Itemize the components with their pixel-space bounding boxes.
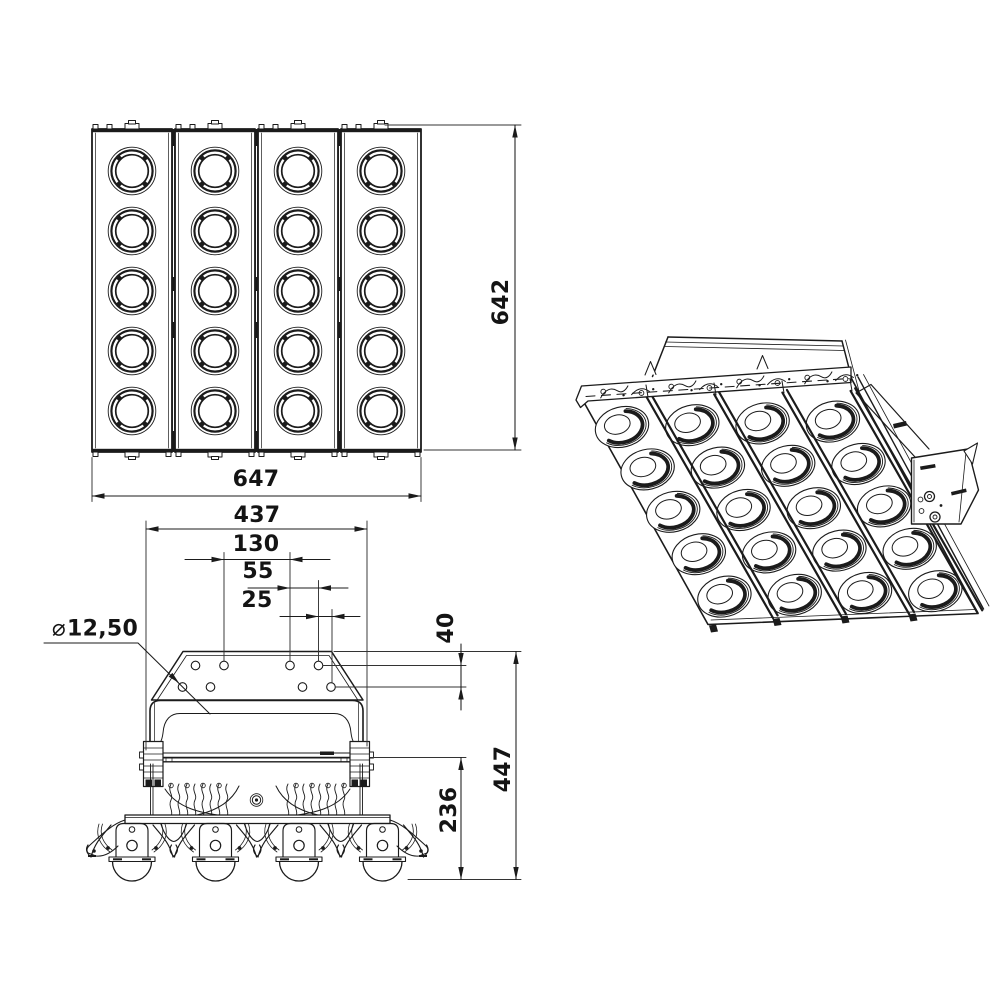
dim-plate-overall-width: 437 [234, 505, 281, 527]
diameter-symbol: ⌀ [52, 616, 66, 642]
lamp-panel [258, 129, 338, 452]
drawing-linework [0, 0, 1000, 1000]
diameter-value: 12,50 [67, 617, 138, 642]
center-bolt [250, 794, 263, 807]
side-view-luminaire [87, 652, 429, 882]
dim-front-height: 642 [491, 279, 513, 326]
dim-front-width: 647 [233, 469, 280, 491]
front-view-luminaire-grid [92, 121, 421, 460]
lamp-panel [92, 129, 172, 452]
lamp-dome [363, 862, 402, 882]
isometric-view-luminaire [576, 337, 989, 633]
lamp-panel [175, 129, 255, 452]
side-view-lamp-units [87, 824, 428, 882]
technical-drawing-canvas: 647 642 437 130 55 25 ⌀12,50 40 447 236 … [0, 0, 1000, 1000]
dim-overall-height: 447 [493, 746, 515, 793]
dim-hole-row-offset: 40 [436, 612, 458, 643]
end-wing-brackets [87, 820, 428, 857]
dim-lower-section-height: 236 [439, 787, 461, 834]
dim-hole-pitch-medium: 55 [242, 561, 273, 583]
lamp-carrier-bar [125, 815, 390, 824]
dim-hole-pitch-large: 130 [233, 534, 280, 556]
lamp-panel [341, 129, 421, 452]
dim-hole-pitch-small: 25 [241, 590, 272, 612]
lamp-dome [113, 862, 152, 882]
iso-mounting-arm [912, 443, 979, 524]
lamp-dome [196, 862, 235, 882]
lamp-dome [280, 862, 319, 882]
driver-housing [150, 701, 363, 758]
dim-hole-diameter: ⌀12,50 [52, 618, 138, 641]
